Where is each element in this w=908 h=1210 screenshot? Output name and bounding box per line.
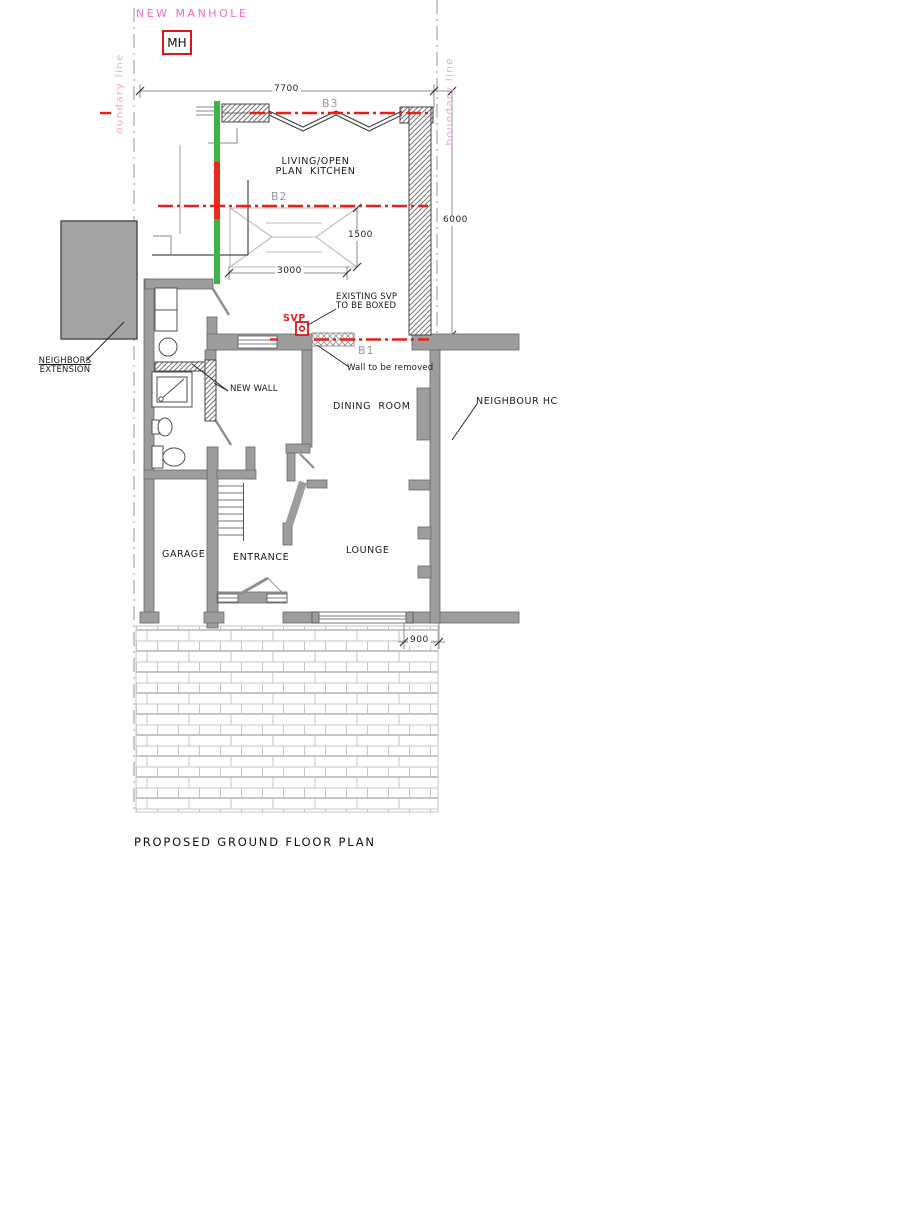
- leader-svp-note: [308, 309, 336, 325]
- room-lounge-label: LOUNGE: [346, 546, 389, 556]
- kitchen-window: [238, 336, 277, 348]
- utility-sink: [159, 338, 177, 356]
- wall-lounge-front-left: [283, 612, 313, 623]
- ext-wall-right: [409, 107, 431, 335]
- room-garage-label: GARAGE: [162, 550, 205, 560]
- wall-garage-front-right: [204, 612, 224, 623]
- wall-stub-3: [418, 566, 431, 578]
- wall-dining-west: [302, 350, 312, 447]
- wall-party: [430, 350, 440, 623]
- utility-hall-door: [216, 421, 231, 445]
- brick-paving: [136, 626, 438, 812]
- leader-neighbour: [452, 404, 477, 440]
- basin: [158, 418, 172, 436]
- wall-hall-vert-b: [287, 453, 295, 481]
- svp-note: EXISTING SVPTO BE BOXED: [336, 293, 397, 312]
- front-door: [240, 578, 268, 594]
- neighbors-extension-block: [61, 221, 137, 339]
- boundary-line-right-label: boundary line: [445, 62, 456, 146]
- wall-hall-vert-e: [283, 523, 292, 545]
- new-manhole-label: NEW MANHOLE: [136, 8, 248, 20]
- beam-b2-label: B2: [271, 191, 288, 203]
- wall-spine: [207, 447, 218, 628]
- dim-900: 900: [408, 636, 431, 646]
- manhole-symbol: MH: [162, 30, 192, 55]
- leader-wall-removed: [317, 345, 349, 367]
- wall-stub-1: [409, 480, 430, 490]
- wall-newwall-cap: [205, 350, 216, 361]
- wall-stair-stub-h: [217, 470, 256, 479]
- manhole-tag: MH: [167, 36, 186, 50]
- neighbors-extension-label: NEIGHBORSEXTENSION: [28, 357, 102, 376]
- wall-rear-right: [412, 334, 519, 350]
- front-door-swing: [268, 578, 282, 592]
- floor-plan-drawing: [0, 0, 908, 1210]
- wc-bowl: [163, 448, 185, 466]
- new-wall-vertical: [205, 360, 216, 421]
- kitchen-island: [230, 208, 357, 267]
- neighbour-house-label: NEIGHBOUR HC: [476, 397, 558, 407]
- wall-removed-note: Wall to be removed: [347, 364, 433, 373]
- wall-garage-front-left: [140, 612, 159, 623]
- wall-hall-diagonal: [289, 482, 303, 525]
- svp-label: SVP: [283, 314, 306, 324]
- drawing-title: PROPOSED GROUND FLOOR PLAN: [134, 836, 376, 849]
- utility-top-door: [213, 289, 229, 315]
- room-dining-label: DINING ROOM: [333, 402, 411, 412]
- beam-b3-label: B3: [322, 98, 339, 110]
- existing-walls: [140, 279, 519, 628]
- staircase: [218, 483, 244, 541]
- appliance-1: [155, 288, 177, 310]
- room-entrance-label: ENTRANCE: [233, 553, 289, 563]
- dim-3000: 3000: [275, 267, 304, 277]
- boundary-line-left-label: oundary line: [115, 52, 126, 136]
- windows: [218, 336, 413, 623]
- lounge-front-window: [312, 612, 413, 623]
- wall-chimney-breast: [417, 388, 430, 440]
- wall-stub-2: [418, 527, 431, 539]
- wall-hall-stub-c: [307, 480, 327, 488]
- room-kitchen-label: LIVING/OPENPLAN KITCHEN: [268, 157, 363, 178]
- utility-divider-wall: [155, 362, 205, 371]
- floor-plan-canvas: NEW MANHOLE MH oundary line boundary lin…: [0, 0, 908, 1210]
- beam-b1-label: B1: [358, 345, 375, 357]
- dim-6000: 6000: [441, 216, 470, 226]
- wall-hall-stub-a: [286, 444, 310, 453]
- dim-1500: 1500: [346, 231, 375, 241]
- wall-garage-divider: [144, 470, 207, 479]
- dining-door: [300, 454, 314, 468]
- wc-cistern: [152, 446, 163, 468]
- new-wall-note: NEW WALL: [230, 385, 278, 394]
- fixtures: [152, 288, 192, 468]
- counter-lines: [152, 107, 248, 255]
- new-hatched-walls: [155, 104, 433, 421]
- appliance-2: [155, 310, 177, 331]
- wall-front-right: [413, 612, 519, 623]
- dim-7700: 7700: [272, 85, 301, 95]
